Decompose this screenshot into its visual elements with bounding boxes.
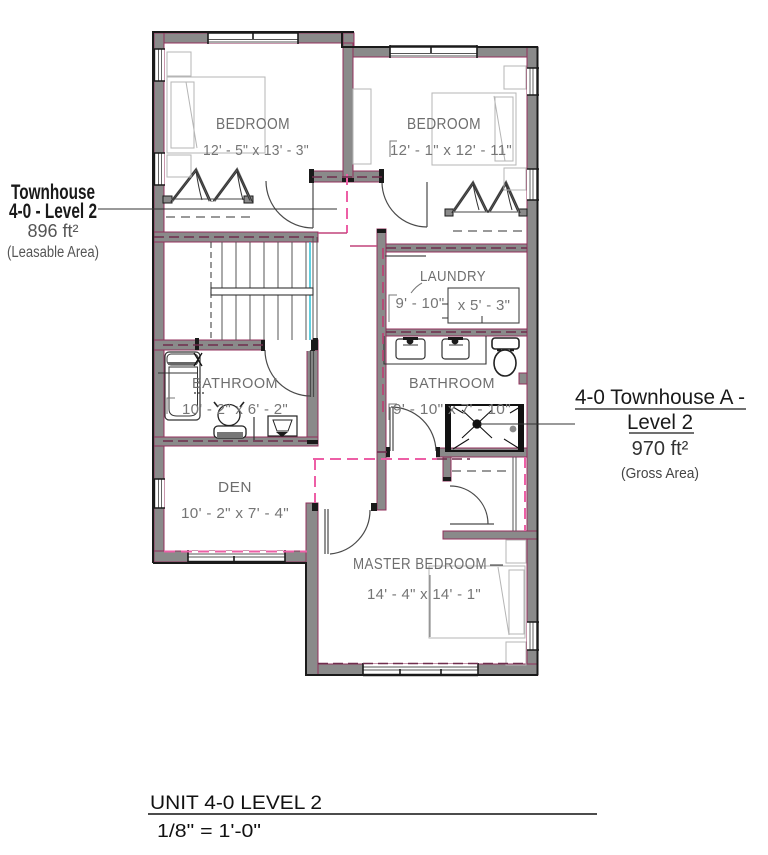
svg-text:10' - 2" x 6' - 2": 10' - 2" x 6' - 2" (182, 401, 288, 418)
svg-text:BATHROOM: BATHROOM (409, 375, 495, 392)
svg-text:DEN: DEN (218, 479, 252, 496)
svg-text:MASTER BEDROOM: MASTER BEDROOM (353, 556, 487, 573)
svg-text:UNIT 4-0 LEVEL 2: UNIT 4-0 LEVEL 2 (150, 793, 322, 814)
svg-text:9' - 10" x 7' - 10": 9' - 10" x 7' - 10" (393, 401, 511, 418)
svg-text:BEDROOM: BEDROOM (407, 116, 481, 133)
svg-text:LAUNDRY: LAUNDRY (420, 268, 486, 285)
svg-text:14' - 4" x 14' - 1": 14' - 4" x 14' - 1" (367, 586, 481, 603)
svg-text:4-0 - Level 2: 4-0 - Level 2 (9, 200, 97, 223)
svg-text:Level 2: Level 2 (627, 411, 693, 434)
svg-text:(Gross Area): (Gross Area) (621, 465, 699, 482)
svg-text:9' - 10": 9' - 10" (396, 295, 445, 312)
svg-text:970 ft²: 970 ft² (632, 438, 689, 460)
svg-text:BEDROOM: BEDROOM (216, 116, 290, 133)
svg-text:x 5' - 3": x 5' - 3" (458, 297, 511, 314)
svg-text:(Leasable Area): (Leasable Area) (7, 244, 99, 261)
svg-text:896 ft²: 896 ft² (27, 221, 78, 241)
svg-text:4-0 Townhouse A -: 4-0 Townhouse A - (575, 386, 745, 409)
svg-text:10' - 2" x 7' - 4": 10' - 2" x 7' - 4" (181, 505, 289, 522)
svg-text:BATHROOM: BATHROOM (192, 375, 278, 392)
svg-text:12' - 1" x 12' - 11": 12' - 1" x 12' - 11" (390, 142, 512, 159)
svg-text:1/8" = 1'-0": 1/8" = 1'-0" (157, 821, 261, 841)
svg-text:12' - 5" x 13' - 3": 12' - 5" x 13' - 3" (203, 142, 309, 159)
